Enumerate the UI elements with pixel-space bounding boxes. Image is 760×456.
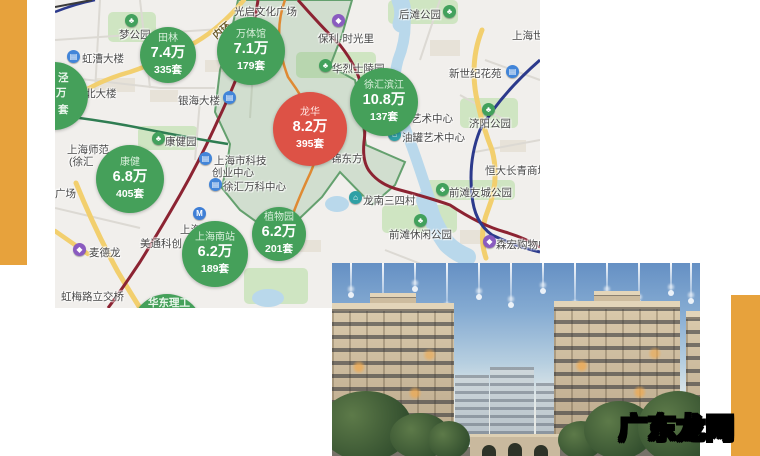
map-label: 虹漕大楼 (82, 51, 124, 66)
bubble-price: 7.1万 (234, 41, 269, 58)
bubble-text-fragment: 泾 (58, 70, 69, 85)
map-label: 森宏购物中心 (496, 237, 540, 252)
building-icon: ▤ (199, 152, 212, 165)
bubble-price: 7.4万 (151, 45, 186, 62)
string-light (670, 263, 672, 291)
map-label: 北大楼 (85, 86, 117, 101)
right-accent-bar (731, 295, 760, 456)
string-light (478, 263, 480, 295)
map-label: 上海世 (512, 28, 540, 43)
bubble-price: 6.2万 (198, 244, 233, 261)
park-icon: ♣ (436, 183, 449, 196)
map-label: 广场 (55, 186, 76, 201)
bubble-count: 395套 (296, 138, 324, 151)
map-label: 保利·时光里 (318, 31, 374, 46)
map-label: 前滩友城公园 (449, 185, 512, 200)
bubble-count: 405套 (116, 188, 144, 201)
building-icon: ▤ (506, 65, 519, 78)
building-icon: ▤ (67, 50, 80, 63)
bubble-name: 康健 (120, 157, 140, 169)
map-label: 前滩休闲公园 (389, 227, 452, 242)
bubble-name: 徐汇滨江 (364, 80, 404, 92)
string-light (414, 263, 416, 287)
string-light (606, 263, 608, 293)
string-light (690, 263, 692, 299)
bubble-name: 植物园 (264, 212, 294, 224)
map-label: 新世纪花苑 (449, 66, 502, 81)
park-icon: ♣ (125, 14, 138, 27)
map-label: 银海大楼 (178, 93, 220, 108)
page: ♣梦公园▤虹漕大楼北大楼▤银海大楼光启文化广场内环◆保利·时光里♣华烈士陵园♣后… (0, 0, 760, 456)
bubble-price: 10.8万 (363, 92, 406, 109)
mall-icon: ◆ (332, 14, 345, 27)
price-bubble-龙华[interactable]: 龙华8.2万395套 (273, 92, 347, 166)
gate-arch (508, 443, 522, 456)
map-label: 美通科创 (140, 236, 182, 251)
bubble-count: 137套 (370, 111, 398, 124)
map-label: 艺术中心 (411, 111, 453, 126)
bubble-count: 189套 (201, 263, 229, 276)
gate-arch (534, 445, 548, 456)
string-light (510, 263, 512, 303)
bubble-name: 上海南站 (195, 232, 235, 244)
bubble-text-fragment: 套 (58, 102, 69, 117)
tree (428, 421, 470, 456)
metro-icon: M (193, 207, 206, 220)
map-label: 油罐艺术中心 (402, 130, 465, 145)
string-light (350, 263, 352, 293)
building-icon: ▤ (223, 91, 236, 104)
map-label: 龙南三四村 (363, 193, 416, 208)
bubble-count: 179套 (237, 60, 265, 73)
bubble-name: 田林 (158, 33, 178, 45)
house-icon: ⌂ (349, 191, 362, 204)
price-bubble-植物园[interactable]: 植物园6.2万201套 (252, 207, 306, 261)
bubble-price: 8.2万 (293, 119, 328, 136)
entrance-gate (470, 434, 560, 456)
left-accent-bar (0, 0, 27, 265)
map-label: 虹梅路立交桥 (61, 289, 124, 304)
watermark: 广东龙网 (619, 407, 735, 447)
housing-price-map[interactable]: ♣梦公园▤虹漕大楼北大楼▤银海大楼光启文化广场内环◆保利·时光里♣华烈士陵园♣后… (55, 0, 540, 308)
map-label: (徐汇 (69, 154, 94, 169)
price-bubble-田林[interactable]: 田林7.4万335套 (140, 27, 196, 83)
park-icon: ♣ (482, 103, 495, 116)
map-label: 济阳公园 (469, 116, 511, 131)
bubble-price: 6.8万 (113, 169, 148, 186)
mall-icon: ◆ (483, 235, 496, 248)
park-icon: ♣ (152, 132, 165, 145)
bubble-name: 龙华 (300, 107, 320, 119)
park-icon: ♣ (414, 214, 427, 227)
map-label: 后滩公园 (399, 7, 441, 22)
bubble-text-fragment: 万 (56, 85, 67, 100)
building-icon: ▤ (209, 178, 222, 191)
park-icon: ♣ (443, 5, 456, 18)
map-label: 恒大长青商城 (485, 163, 540, 178)
price-bubble-万体馆[interactable]: 万体馆7.1万179套 (217, 17, 285, 85)
bubble-count: 335套 (154, 64, 182, 77)
price-bubble-徐汇滨江[interactable]: 徐汇滨江10.8万137套 (350, 68, 418, 136)
map-label: 徐汇万科中心 (223, 179, 286, 194)
price-bubble-康健[interactable]: 康健6.8万405套 (96, 145, 164, 213)
string-light (542, 263, 544, 289)
park-icon: ♣ (319, 59, 332, 72)
map-label: 康健园 (165, 134, 197, 149)
bubble-name: 万体馆 (236, 29, 266, 41)
bubble-text-fragment: 华东理工 (148, 295, 190, 308)
price-bubble-上海南站[interactable]: 上海南站6.2万189套 (182, 221, 248, 287)
map-label: 麦德龙 (89, 245, 121, 260)
bubble-count: 201套 (265, 243, 293, 256)
bubble-price: 6.2万 (262, 224, 297, 241)
mall-icon: ◆ (73, 243, 86, 256)
gate-arch (482, 445, 496, 456)
